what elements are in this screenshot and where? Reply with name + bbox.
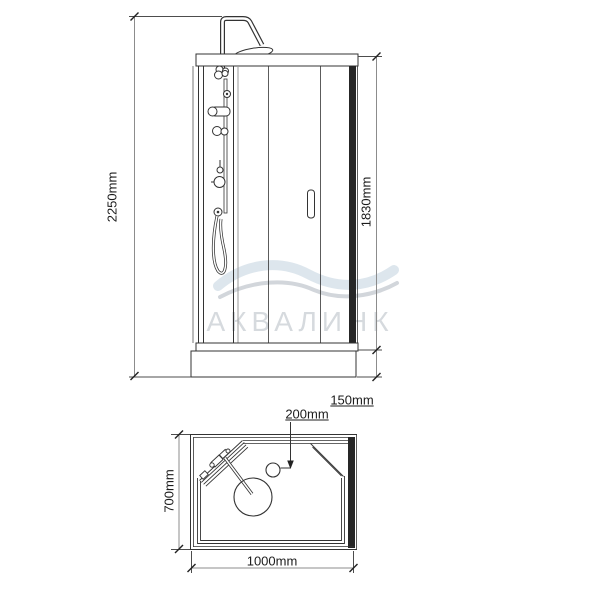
dim-depth-label: 700mm xyxy=(163,469,176,512)
drawing-canvas xyxy=(0,0,601,600)
plan-right-dark-wall xyxy=(348,437,355,548)
plan-door-swing-arm xyxy=(225,458,252,494)
mixer-knob-small xyxy=(217,167,223,173)
plan-view-dimensions xyxy=(171,431,358,574)
dim-drain-offset-label: 200mm xyxy=(285,408,328,421)
mixer-knob-large xyxy=(214,177,225,188)
technical-drawing-page: АКВАЛИНК xyxy=(0,0,601,600)
plan-view-drawing xyxy=(190,422,357,550)
dimension-ticks xyxy=(131,13,381,382)
dimension-ticks xyxy=(175,431,358,573)
dim-cabin-height-label: 1830mm xyxy=(360,177,373,228)
watermark-wave-logo xyxy=(218,265,397,297)
dim-width-label: 1000mm xyxy=(247,555,298,568)
drain-offset-leader xyxy=(281,422,294,469)
front-view-drawing xyxy=(191,19,358,378)
front-view-dimensions xyxy=(129,13,382,382)
drain-circle xyxy=(266,463,280,477)
shower-tray-base xyxy=(191,351,356,377)
cabin-top-frame xyxy=(196,54,358,66)
plan-outer-walls xyxy=(190,434,357,550)
tray-large-circle xyxy=(234,478,272,516)
dim-total-height-label: 2250mm xyxy=(106,172,119,223)
dim-tray-height-label: 150mm xyxy=(330,394,373,407)
door-frame-dark-band xyxy=(349,66,356,343)
glass-bottom-rail xyxy=(196,343,358,351)
shower-column xyxy=(208,71,231,274)
door-handle xyxy=(308,190,315,218)
